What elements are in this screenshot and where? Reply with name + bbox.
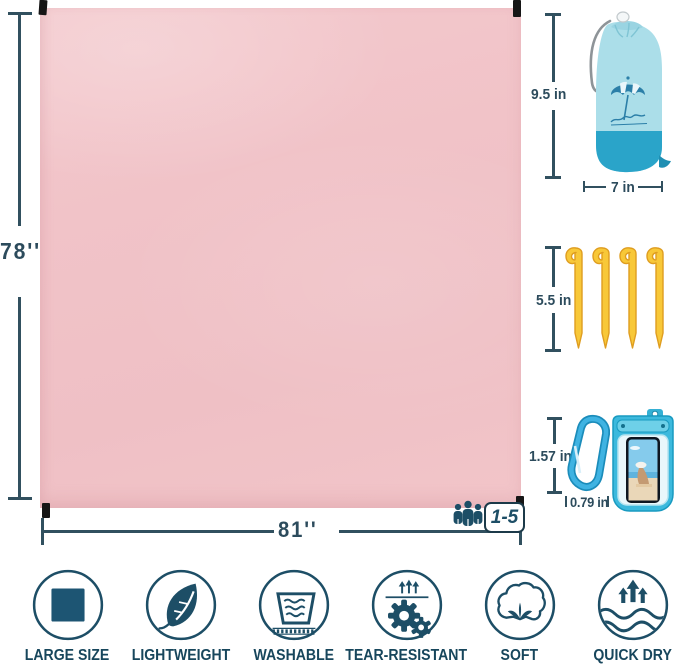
phone-screen-beach-scene [629,440,658,501]
bag-width-line [638,186,661,188]
waves-arrows-icon [596,568,670,642]
stakes-dim-line [552,313,555,350]
bag-width-cap-right [661,181,663,192]
feature-soft: SOFT [463,568,576,665]
wash-basin-icon [257,568,331,642]
bag-corner-flap [659,155,671,168]
carabiner-dim-line [553,419,556,444]
tent-stake [644,245,668,353]
width-dim-line [43,530,274,533]
blanket [40,8,521,508]
people-icon [451,499,485,530]
feature-lightweight: LIGHTWEIGHT [124,568,237,665]
carabiner-width-cap-right [607,496,609,507]
feature-tear-resistant: TEAR-RESISTANT [350,568,463,665]
cord-toggle [617,12,629,22]
gears-icon [370,568,444,642]
bag-height-label: 9.5 in [531,86,566,103]
stakes-dim-line [552,248,555,287]
blanket-width-label: 81'' [278,517,318,543]
height-dim-line [18,14,21,226]
feature-label: QUICK DRY [593,647,671,665]
bag-width-line [585,186,606,188]
cotton-icon [483,568,557,642]
carabiner-dim-cap-bottom [547,491,562,494]
bag-dim-line [552,110,555,176]
features-row: LARGE SIZE LIGHTWEIGHT [0,568,679,665]
feature-label: WASHABLE [253,647,334,665]
carabiner-width-label: 0.79 in [570,494,608,510]
blanket-corner-tab [42,503,50,518]
feature-washable: WASHABLE [237,568,350,665]
tent-stake [590,245,614,353]
capacity-label: 1-5 [491,507,518,529]
bag-dim-line [552,15,555,82]
blanket-corner-tab [38,0,47,15]
carabiner-dim-line [553,468,556,492]
tent-stake [617,245,641,353]
carabiner [566,414,610,492]
bag-dim-cap-bottom [545,176,561,179]
feature-quick-dry: QUICK DRY [576,568,679,665]
product-infographic: 78'' 81'' 1-5 9.5 in [0,0,679,671]
blanket-height-label: 78'' [0,238,41,265]
stakes-dim-cap-bottom [545,349,561,352]
blanket-corner-tab [513,0,521,17]
height-dim-line [18,297,21,497]
carabiner-width-cap-left [565,496,567,507]
leaf-icon [144,568,218,642]
feature-label: SOFT [501,647,539,665]
feature-label: LARGE SIZE [25,647,109,665]
capacity-badge: 1-5 [484,502,525,533]
waterproof-phone-pouch [611,408,675,512]
tent-stake [563,245,587,353]
storage-bag [571,4,673,182]
feature-label: LIGHTWEIGHT [131,647,230,665]
feature-label: TEAR-RESISTANT [346,647,468,665]
square-icon [31,568,105,642]
bag-width-label: 7 in [611,179,635,196]
height-dim-cap-bottom [8,497,32,500]
feature-large-size: LARGE SIZE [11,568,124,665]
